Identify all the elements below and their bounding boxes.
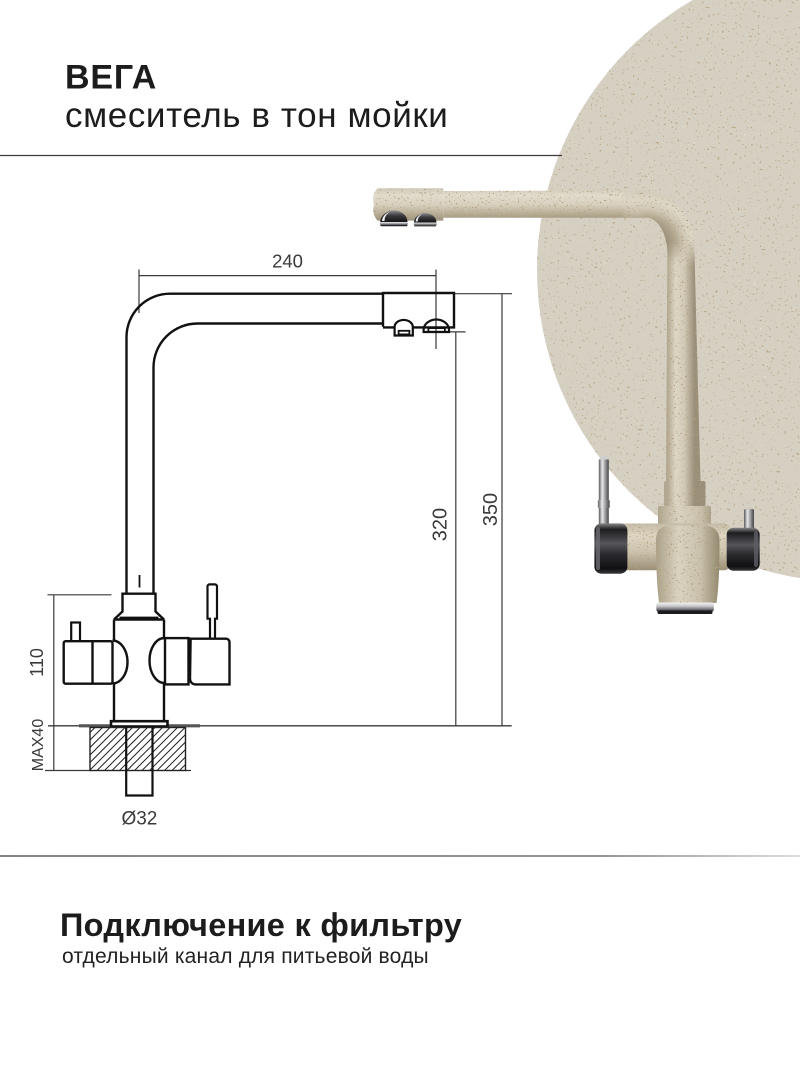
svg-text:Подключение к фильтру: Подключение к фильтру — [60, 907, 462, 943]
svg-text:отдельный канал для питьевой в: отдельный канал для питьевой воды — [62, 945, 429, 968]
svg-text:MAX40: MAX40 — [30, 719, 47, 772]
svg-text:смеситель в тон мойки: смеситель в тон мойки — [65, 96, 448, 135]
svg-text:240: 240 — [272, 251, 303, 272]
svg-text:Ø32: Ø32 — [121, 809, 157, 830]
svg-text:ВЕГА: ВЕГА — [65, 59, 157, 97]
svg-text:350: 350 — [480, 493, 502, 526]
svg-text:320: 320 — [430, 508, 452, 541]
svg-text:110: 110 — [27, 648, 47, 677]
